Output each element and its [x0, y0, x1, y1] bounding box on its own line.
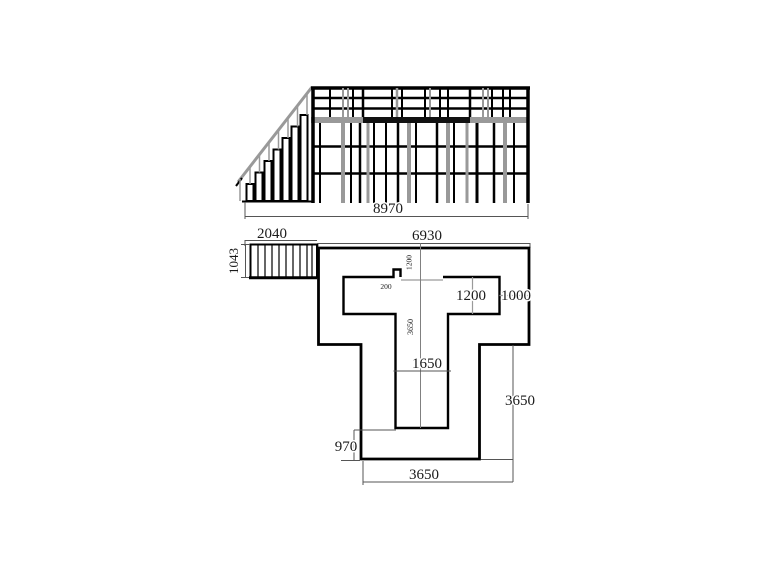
dim-label-200: 200	[380, 282, 392, 291]
dim-label-6930: 6930	[412, 228, 442, 244]
technical-drawing-page: 8970 6930 2040	[0, 0, 760, 570]
platform-band-black	[363, 117, 470, 123]
dim-stair-width: 2040	[245, 226, 317, 246]
dim-stem-bottom-offset: 970	[335, 430, 396, 461]
dim-label-8970: 8970	[373, 201, 403, 217]
stair-step	[256, 173, 263, 202]
stair-elevation	[236, 87, 312, 202]
dim-elevation-overall-width: 8970	[245, 201, 528, 219]
stair-step	[283, 138, 290, 201]
dim-inner-stem-width: 1650	[394, 356, 452, 372]
stair-plan	[249, 245, 317, 278]
plan-view: 6930 2040 1043	[226, 226, 535, 485]
dim-label-3650-rotated: 3650	[406, 319, 415, 335]
dim-stem-side-height: 3650	[481, 345, 535, 482]
dim-label-1200: 1200	[456, 288, 486, 304]
dim-label-3650-right: 3650	[505, 393, 535, 409]
dim-label-1043: 1043	[226, 248, 241, 274]
dim-label-1200-rotated: 1200	[405, 255, 414, 270]
dim-label-1000: 1000	[501, 288, 531, 304]
dim-label-1650: 1650	[412, 356, 442, 372]
stair-step	[274, 150, 281, 202]
drawing-svg: 8970 6930 2040	[0, 0, 760, 570]
scaffold-frame-elevation	[311, 87, 530, 203]
dim-stair-depth: 1043	[226, 244, 250, 278]
elevation-view: 8970	[236, 87, 530, 219]
dim-plan-deck-width: 6930	[318, 228, 530, 248]
dim-stem-bottom-width: 3650	[363, 461, 513, 485]
dim-label-2040: 2040	[257, 226, 287, 242]
stair-step	[301, 115, 308, 201]
stair-step	[265, 161, 272, 201]
dim-label-3650-bottom: 3650	[409, 467, 439, 483]
dim-opening-height: 1200	[456, 277, 486, 314]
stair-step	[247, 184, 254, 201]
dim-right-margin: 1000	[500, 288, 532, 304]
dim-label-970: 970	[335, 439, 358, 455]
stair-step	[292, 127, 299, 202]
